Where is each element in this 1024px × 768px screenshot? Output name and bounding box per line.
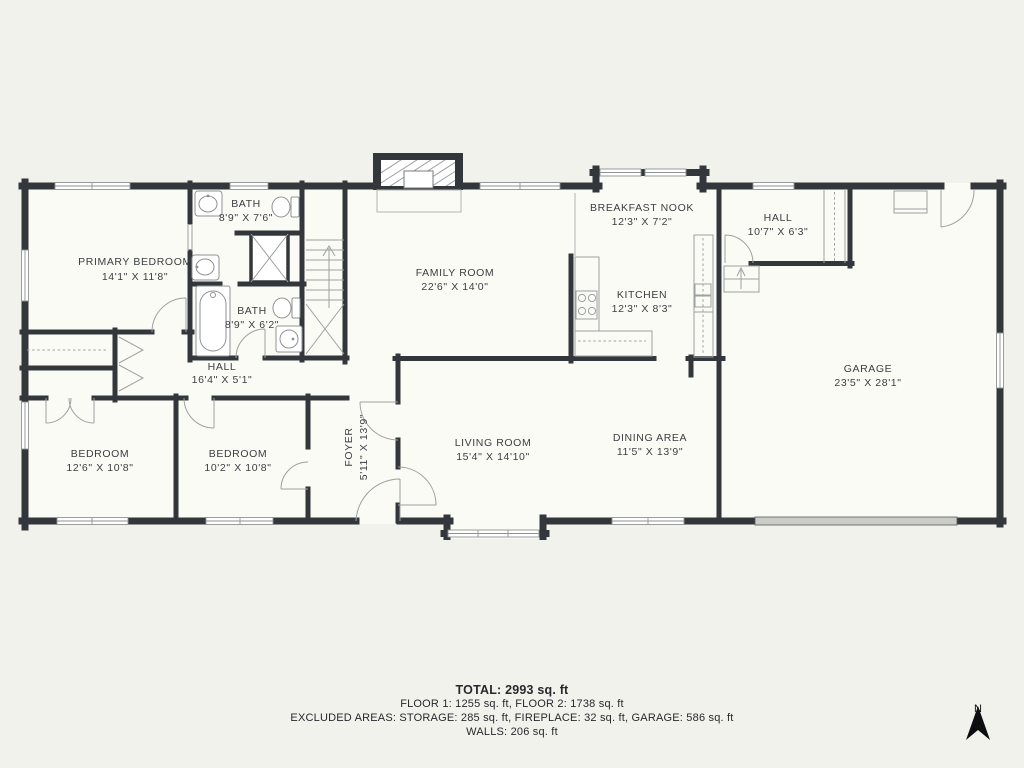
room-label-bedroom-left: BEDROOM	[71, 448, 129, 460]
window	[997, 333, 1004, 388]
room-label-garage: GARAGE	[844, 363, 893, 375]
room-dims-breakfast-nook: 12'3" X 7'2"	[612, 216, 673, 228]
window	[753, 183, 794, 190]
room-label-bedroom-middle: BEDROOM	[209, 448, 267, 460]
summary-total: TOTAL: 2993 sq. ft	[0, 683, 1024, 697]
room-dims-garage: 23'5" X 28'1"	[834, 377, 901, 389]
room-label-foyer: FOYER	[343, 427, 355, 466]
room-dims-dining-area: 11'5" X 13'9"	[617, 446, 683, 458]
window	[57, 518, 128, 525]
sink	[192, 255, 219, 280]
window	[480, 183, 560, 190]
room-label-hall-left: HALL	[208, 361, 237, 373]
toilet	[273, 298, 300, 318]
shower	[251, 234, 288, 282]
area-summary: TOTAL: 2993 sq. ft FLOOR 1: 1255 sq. ft,…	[0, 683, 1024, 739]
window	[600, 169, 641, 176]
room-dims-bedroom-middle: 10'2" X 10'8"	[204, 462, 271, 474]
room-dims-living-room: 15'4" X 14'10"	[456, 451, 530, 463]
floor-plan-canvas: PRIMARY BEDROOM 14'1" X 11'8" BATH 8'9" …	[0, 0, 1024, 768]
room-dims-foyer: 5'11" X 13'9"	[358, 414, 370, 480]
room-label-bath-top: BATH	[231, 198, 261, 210]
floor-area	[25, 169, 1003, 539]
window	[22, 402, 29, 449]
entry-window	[448, 530, 539, 537]
room-label-primary-bedroom: PRIMARY BEDROOM	[78, 256, 192, 268]
room-label-hall-right: HALL	[764, 212, 793, 224]
room-dims-bath-top: 8'9" X 7'6"	[219, 212, 273, 224]
room-label-bath-bottom: BATH	[237, 305, 267, 317]
room-dims-bedroom-left: 12'6" X 10'8"	[66, 462, 133, 474]
room-dims-bath-bottom: 8'9" X 6'2"	[225, 319, 279, 331]
toilet	[272, 197, 299, 217]
window	[55, 183, 130, 190]
room-label-dining-area: DINING AREA	[613, 432, 687, 444]
room-label-living-room: LIVING ROOM	[455, 437, 532, 449]
room-label-breakfast-nook: BREAKFAST NOOK	[590, 202, 694, 214]
window	[612, 518, 684, 525]
room-dims-hall-left: 16'4" X 5'1"	[192, 374, 253, 386]
room-dims-hall-right: 10'7" X 6'3"	[748, 226, 809, 238]
compass: N	[961, 703, 995, 715]
window	[230, 183, 268, 190]
garage-door	[755, 517, 957, 525]
floor-plan-page: { "palette": { "background": "#f2f2ec", …	[0, 0, 1024, 768]
sink	[276, 326, 302, 352]
window	[645, 169, 686, 176]
north-arrow	[961, 703, 995, 743]
summary-floors: FLOOR 1: 1255 sq. ft, FLOOR 2: 1738 sq. …	[0, 697, 1024, 711]
room-label-family-room: FAMILY ROOM	[416, 267, 495, 279]
window	[206, 518, 273, 525]
room-dims-kitchen: 12'3" X 8'3"	[612, 303, 673, 315]
room-dims-family-room: 22'6" X 14'0"	[421, 281, 488, 293]
window	[22, 250, 29, 301]
summary-walls: WALLS: 206 sq. ft	[0, 725, 1024, 739]
summary-excluded: EXCLUDED AREAS: STORAGE: 285 sq. ft, FIR…	[0, 711, 1024, 725]
room-dims-primary-bedroom: 14'1" X 11'8"	[102, 271, 168, 283]
room-label-kitchen: KITCHEN	[617, 289, 667, 301]
